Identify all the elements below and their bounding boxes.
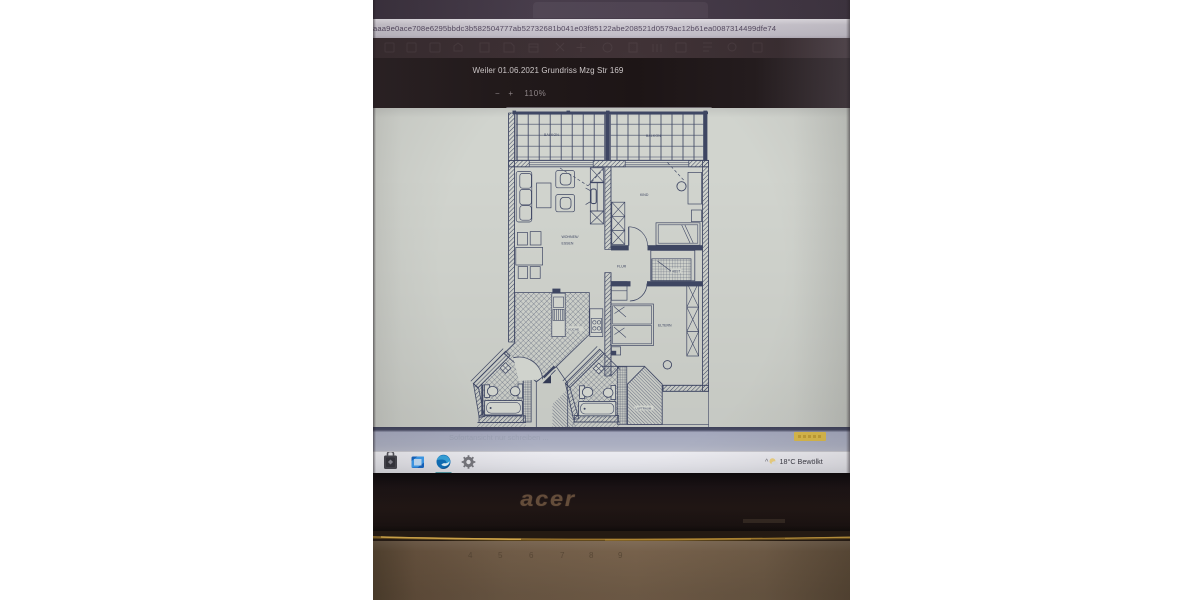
svg-text:FLUR: FLUR <box>617 265 627 269</box>
svg-text:ABST: ABST <box>672 269 680 273</box>
svg-text:WOHNEN/: WOHNEN/ <box>562 235 579 239</box>
svg-text:^: ^ <box>765 459 769 466</box>
svg-text:BALKON: BALKON <box>646 134 661 138</box>
svg-text:18°C Bewölkt: 18°C Bewölkt <box>780 457 823 466</box>
svg-text:BALKON: BALKON <box>544 133 559 137</box>
svg-text:ESSEN: ESSEN <box>562 241 574 245</box>
svg-text:KIND: KIND <box>640 193 649 197</box>
svg-text:KÜCHE: KÜCHE <box>569 328 580 332</box>
svg-text:ELTERN: ELTERN <box>658 323 672 327</box>
svg-text:LUFTRAUM: LUFTRAUM <box>636 407 652 411</box>
